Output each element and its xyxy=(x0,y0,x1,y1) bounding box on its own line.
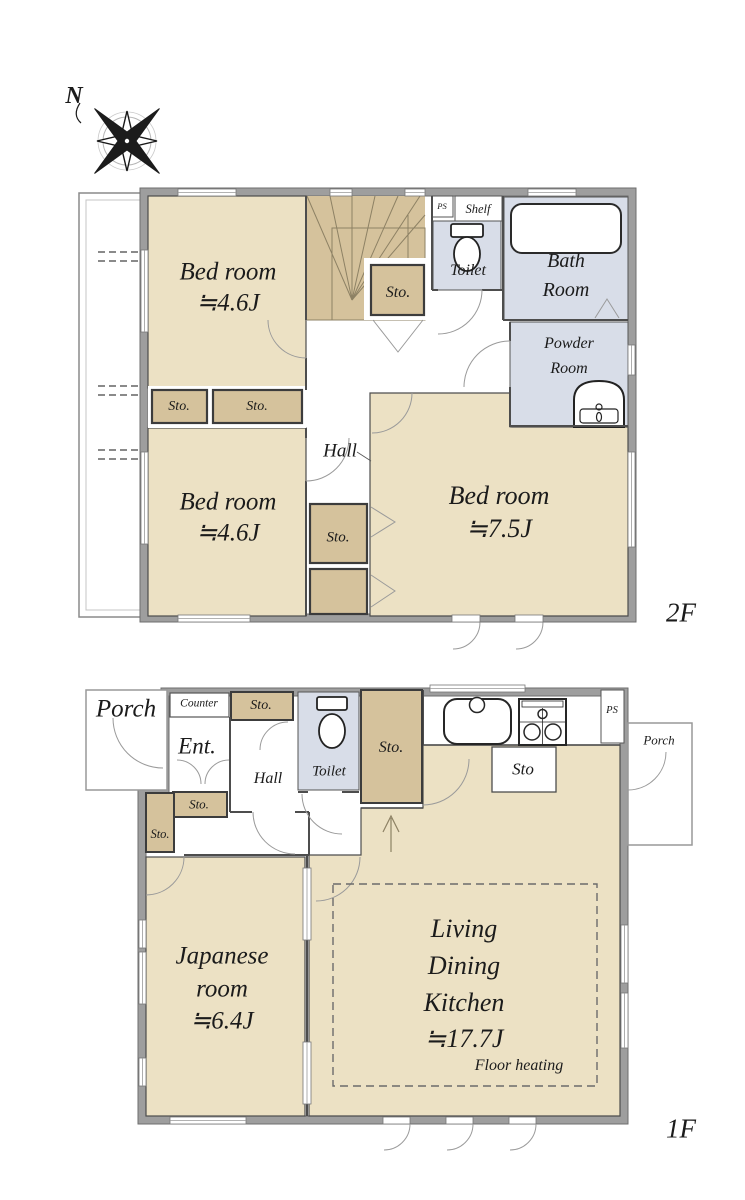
entrance-label: Ent. xyxy=(178,735,216,758)
bedroom-b-area: ≒4.6J xyxy=(196,521,259,546)
hall-label-1f: Hall xyxy=(254,771,282,787)
sto-label-2f-stairs: Sto. xyxy=(386,285,410,301)
ldk-line2: Dining xyxy=(428,953,500,979)
hall-label-2f: Hall xyxy=(323,442,357,461)
bedroom-a-area: ≒4.6J xyxy=(196,291,259,316)
toilet-label-1f: Toilet xyxy=(312,765,346,780)
sto-label-1f-top: Sto. xyxy=(250,699,271,713)
compass-icon xyxy=(76,103,159,174)
floor-label-1f: 1F xyxy=(666,1116,696,1143)
sink-icon-powder xyxy=(574,381,624,427)
stove-icon xyxy=(519,699,566,745)
bath-label-line1: Bath xyxy=(547,251,585,271)
counter-label: Counter xyxy=(180,698,218,710)
ldk-line1: Living xyxy=(431,916,497,942)
porch-right-label: Porch xyxy=(643,734,674,747)
closet-sto-left-1f xyxy=(146,793,174,852)
compass-north-label: N xyxy=(65,84,82,108)
sto-label-2f-mid: Sto. xyxy=(327,531,350,546)
bedroom-a-name: Bed room xyxy=(180,260,277,285)
ps-label-2f: PS xyxy=(437,202,446,211)
bedroom-c-name: Bed room xyxy=(449,483,550,509)
toilet-icon-1f xyxy=(317,697,347,748)
bath-label-line2: Room xyxy=(543,280,590,300)
ps-box-1f xyxy=(601,690,624,743)
powder-label-line2: Room xyxy=(550,361,587,377)
bedroom-b-name: Bed room xyxy=(180,490,277,515)
floor-plan-drawing xyxy=(0,0,745,1200)
ps-label-1f: PS xyxy=(606,706,618,717)
sto-label-1f-mid: Sto. xyxy=(189,798,209,811)
floor-label-2f: 2F xyxy=(666,600,696,627)
ldk-area: ≒17.7J xyxy=(425,1026,504,1052)
sto-label-1f-left: Sto. xyxy=(150,828,169,841)
powder-label-line1: Powder xyxy=(544,336,594,352)
sto-label-2f-1: Sto. xyxy=(168,400,189,414)
bedroom-c-area: ≒7.5J xyxy=(466,516,532,542)
sto-label-1f-large: Sto. xyxy=(379,740,403,756)
japanese-room-line1: Japanese xyxy=(175,944,268,969)
floor-plan-canvas: N Bed room ≒4.6J Bed room ≒4.6J Bed room… xyxy=(0,0,745,1200)
japanese-room-area: ≒6.4J xyxy=(190,1009,253,1034)
porch-left-label: Porch xyxy=(96,697,156,722)
bathtub-icon xyxy=(511,204,621,253)
kitchen-sink-icon xyxy=(444,698,511,745)
floor-heating-label: Floor heating xyxy=(475,1058,563,1074)
shelf-label: Shelf xyxy=(466,203,491,216)
japanese-room-line2: room xyxy=(196,977,248,1002)
balcony-2f xyxy=(79,193,148,617)
ldk-line3: Kitchen xyxy=(424,990,505,1016)
sto-label-kitchen: Sto xyxy=(512,761,534,778)
sto-label-2f-2: Sto. xyxy=(246,400,267,414)
toilet-label-2f: Toilet xyxy=(450,263,486,279)
